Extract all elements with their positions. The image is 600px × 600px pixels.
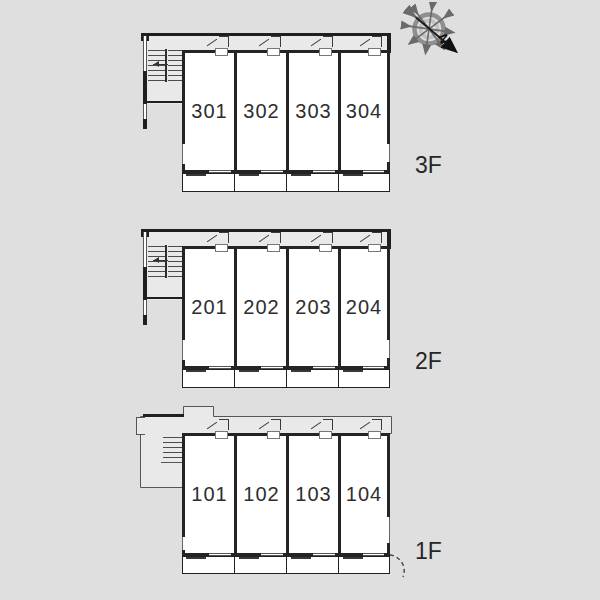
room-number: 204 — [346, 296, 382, 319]
room-number: 302 — [243, 100, 279, 123]
door-slab — [368, 244, 381, 252]
stairs-direction-arrow-icon — [153, 260, 168, 261]
room-number: 303 — [295, 100, 331, 123]
window — [313, 170, 335, 173]
door-slab — [368, 431, 381, 439]
exterior-wall-with-windows — [143, 232, 147, 325]
room-number: 202 — [243, 296, 279, 319]
room-block: 301 302 303 304 — [182, 50, 390, 173]
door-slab — [215, 244, 228, 252]
balcony — [182, 173, 390, 192]
room-number: 203 — [295, 296, 331, 319]
exterior-wall — [143, 414, 184, 417]
room: 204 — [341, 249, 387, 366]
corridor-edge-wall — [143, 297, 184, 299]
window — [209, 366, 231, 369]
stairs-icon — [163, 437, 184, 464]
balcony — [182, 369, 390, 388]
floor-section-1f: 101 102 103 104 — [138, 405, 473, 580]
room: 103 — [289, 436, 338, 553]
room: 201 — [185, 249, 234, 366]
room-number: 103 — [295, 483, 331, 506]
window — [261, 170, 283, 173]
room: 304 — [341, 53, 387, 170]
window — [143, 300, 147, 315]
floor-section-2f: 201 202 203 204 — [138, 229, 473, 404]
door-slab — [267, 48, 280, 56]
room-number: 301 — [191, 100, 227, 123]
room: 303 — [289, 53, 338, 170]
gate-swing-icon — [389, 553, 411, 581]
room-number: 304 — [346, 100, 382, 123]
stairs-divider — [165, 245, 167, 278]
room: 102 — [237, 436, 286, 553]
room: 202 — [237, 249, 286, 366]
door-slab — [267, 431, 280, 439]
floor-label: 2F — [415, 348, 442, 375]
stairs-icon — [168, 246, 182, 277]
window — [182, 144, 185, 164]
room-number: 104 — [346, 483, 382, 506]
wall-pier — [136, 417, 145, 435]
door-slab — [215, 431, 228, 439]
exterior-wall-with-windows — [143, 36, 147, 129]
door-slab — [319, 244, 332, 252]
window — [363, 553, 384, 556]
room-number: 101 — [191, 483, 227, 506]
window — [387, 517, 390, 543]
window — [363, 366, 384, 369]
room-block: 201 202 203 204 — [182, 246, 390, 369]
window — [261, 553, 283, 556]
window — [182, 537, 185, 550]
window — [182, 340, 185, 360]
window — [313, 366, 335, 369]
door-slab — [319, 48, 332, 56]
stairs-icon — [168, 50, 182, 81]
stairs-direction-arrow-icon — [153, 64, 168, 65]
window — [209, 170, 231, 173]
window — [313, 553, 335, 556]
floorplan-canvas: N 301 302 — [0, 0, 600, 600]
floor-label: 1F — [415, 538, 442, 565]
window — [143, 36, 147, 71]
floor-label: 3F — [415, 152, 442, 179]
door-slab — [319, 431, 332, 439]
window — [143, 104, 147, 119]
room: 301 — [185, 53, 234, 170]
window — [387, 340, 390, 358]
room: 203 — [289, 249, 338, 366]
corridor-edge-wall — [143, 101, 184, 103]
window — [143, 232, 147, 267]
room: 104 — [341, 436, 387, 553]
window — [261, 366, 283, 369]
window — [209, 553, 231, 556]
room: 302 — [237, 53, 286, 170]
door-slab — [215, 48, 228, 56]
room: 101 — [185, 436, 234, 553]
door-slab — [267, 244, 280, 252]
room-number: 201 — [191, 296, 227, 319]
door-slab — [368, 48, 381, 56]
stairs-divider — [165, 49, 167, 82]
window — [387, 144, 390, 162]
room-block: 101 102 103 104 — [182, 433, 390, 556]
room-number: 102 — [243, 483, 279, 506]
window — [363, 170, 384, 173]
floor-section-3f: 301 302 303 304 — [138, 33, 473, 208]
terrace — [182, 556, 390, 574]
